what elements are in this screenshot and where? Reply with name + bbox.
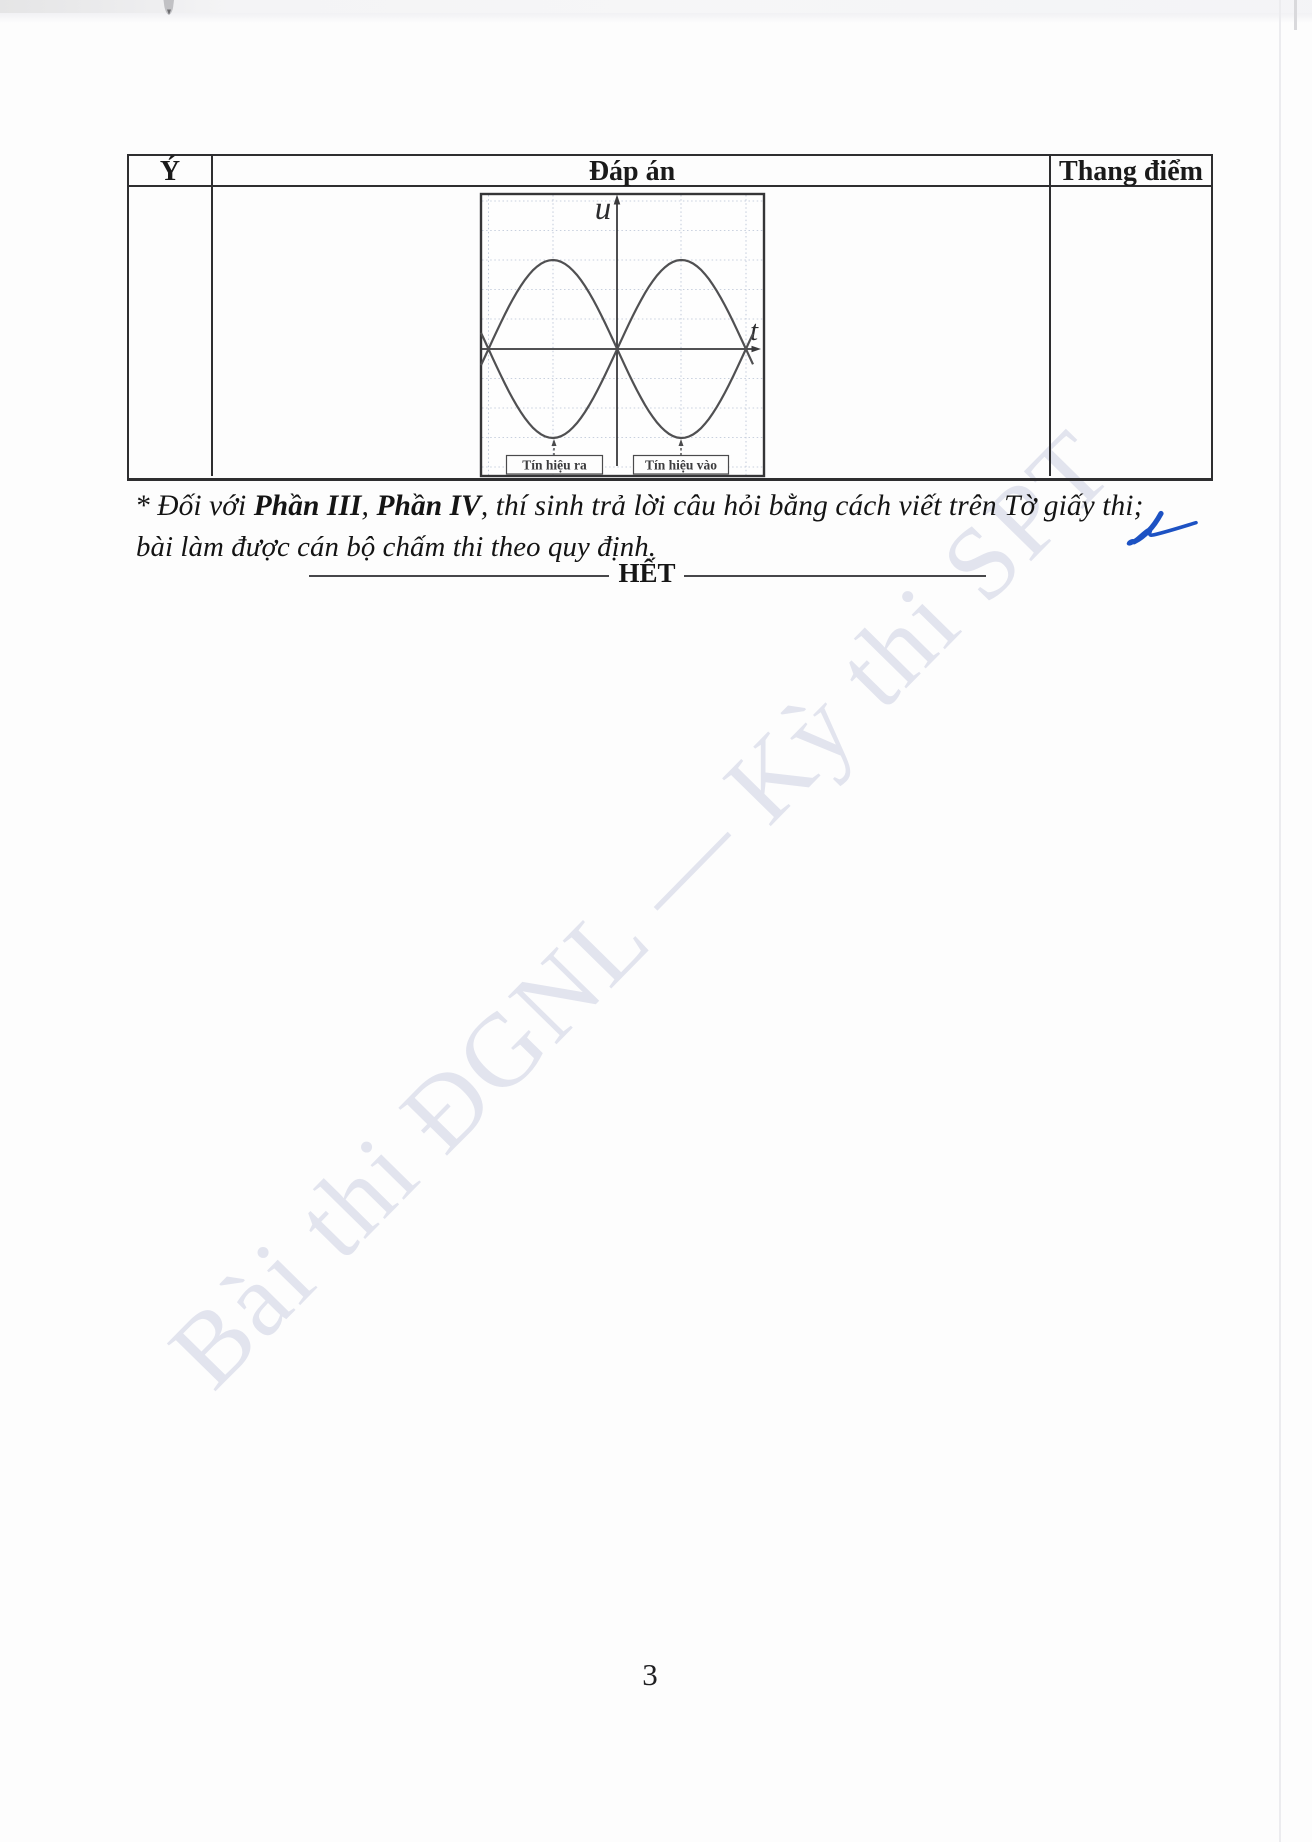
svg-text:u: u: [595, 191, 612, 227]
svg-text:Tín hiệu ra: Tín hiệu ra: [522, 458, 587, 473]
svg-text:Tín hiệu vào: Tín hiệu vào: [645, 458, 717, 473]
svg-text:t: t: [750, 315, 759, 347]
